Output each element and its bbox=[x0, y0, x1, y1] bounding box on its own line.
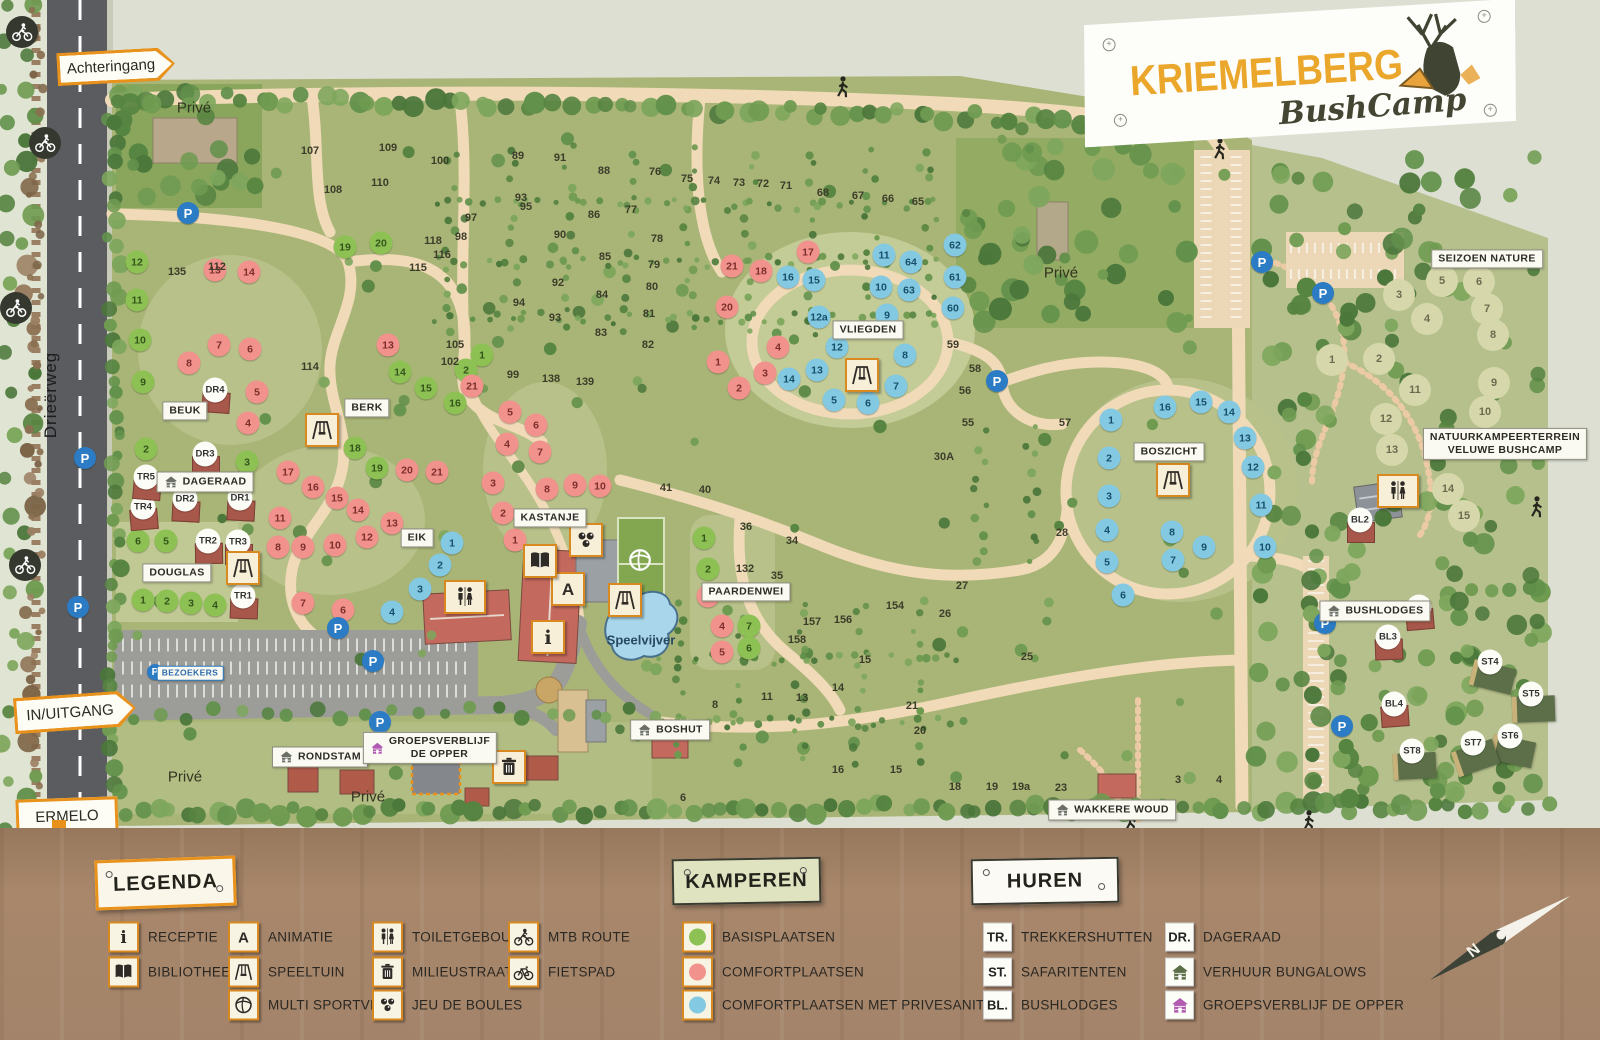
legend-label: FIETSPAD bbox=[548, 965, 615, 980]
pitch-marker-comfort_prive[interactable]: 8 bbox=[894, 344, 917, 367]
area-label: DOUGLAS bbox=[142, 563, 211, 582]
plot-number: 83 bbox=[595, 327, 607, 339]
swing-icon[interactable] bbox=[226, 551, 260, 585]
legend-label: COMFORTPLAATSEN MET PRIVESANITAIR bbox=[722, 998, 1007, 1013]
plot-number: 59 bbox=[947, 339, 959, 351]
walker-icon[interactable] bbox=[1207, 137, 1233, 163]
plot-number: 86 bbox=[588, 209, 600, 221]
legend-item-mtb: MTB ROUTE bbox=[508, 922, 630, 953]
rental-marker[interactable]: ST7 bbox=[1461, 731, 1486, 756]
swing-icon[interactable] bbox=[845, 358, 879, 392]
plot-number: 13 bbox=[796, 692, 808, 704]
pitch-marker-comfort_prive[interactable]: 62 bbox=[944, 234, 967, 257]
plot-number: 90 bbox=[554, 229, 566, 241]
pitch-marker-nature[interactable]: 15 bbox=[1448, 500, 1480, 532]
pitch-marker-comfort[interactable]: 2 bbox=[492, 502, 515, 525]
rental-marker[interactable]: ST8 bbox=[1400, 739, 1425, 764]
plot-number: 89 bbox=[512, 150, 524, 162]
prive-label: Privé bbox=[168, 769, 202, 786]
walker-icon[interactable] bbox=[1524, 495, 1550, 521]
pitch-marker-comfort_prive[interactable]: 3 bbox=[409, 578, 432, 601]
legend-item-animatie: AANIMATIE bbox=[228, 922, 333, 953]
plot-number: 132 bbox=[736, 563, 754, 575]
area-label: PAARDENWEI bbox=[702, 582, 791, 601]
plot-number: 66 bbox=[882, 193, 894, 205]
svg-text:A: A bbox=[238, 930, 249, 946]
pitch-marker-comfort[interactable]: 5 bbox=[246, 381, 269, 404]
pitch-marker-comfort_prive[interactable]: 14 bbox=[1218, 401, 1241, 424]
plot-number: 16 bbox=[832, 764, 844, 776]
pitch-marker-comfort_prive[interactable]: 16 bbox=[777, 266, 800, 289]
legend-item-huren: ST.SAFARITENTEN bbox=[983, 958, 1127, 987]
area-label: BEUK bbox=[162, 401, 207, 420]
rental-marker[interactable]: ST4 bbox=[1478, 650, 1503, 675]
house-icon bbox=[1165, 991, 1194, 1020]
pitch-marker-comfort_prive[interactable]: 15 bbox=[1190, 391, 1213, 414]
area-label: BOSHUT bbox=[630, 720, 710, 741]
parking-icon[interactable]: P bbox=[1331, 715, 1353, 737]
plot-number: 81 bbox=[643, 308, 655, 320]
rental-marker[interactable]: ST6 bbox=[1498, 724, 1523, 749]
legend-label: SAFARITENTEN bbox=[1021, 965, 1127, 980]
plot-number: 102 bbox=[441, 356, 459, 368]
legend-label: SPEELTUIN bbox=[268, 965, 345, 980]
pitch-marker-basis[interactable]: 2 bbox=[156, 590, 179, 613]
area-label: DAGERAAD bbox=[157, 472, 254, 493]
pitch-marker-basis[interactable]: 3 bbox=[180, 592, 203, 615]
area-label: SEIZOEN NATURE bbox=[1431, 249, 1543, 268]
parking-icon[interactable]: P bbox=[369, 711, 391, 733]
area-label: BUSHLODGES bbox=[1319, 601, 1430, 622]
plot-number: 41 bbox=[660, 482, 672, 494]
pitch-marker-comfort_prive[interactable]: 2 bbox=[429, 554, 452, 577]
pitch-marker-comfort[interactable]: 6 bbox=[525, 414, 548, 437]
wc-icon[interactable] bbox=[1377, 474, 1419, 508]
boules-icon[interactable] bbox=[569, 523, 603, 557]
info-icon[interactable]: i bbox=[531, 620, 565, 654]
pitch-marker-comfort_prive[interactable]: 11 bbox=[1250, 494, 1273, 517]
pitch-dot-icon bbox=[682, 990, 713, 1021]
mtb-icon[interactable] bbox=[9, 549, 41, 581]
pitch-marker-comfort[interactable]: 10 bbox=[324, 534, 347, 557]
pitch-marker-comfort_prive[interactable]: 11 bbox=[873, 244, 896, 267]
plot-number: 98 bbox=[455, 231, 467, 243]
plot-number: 4 bbox=[1216, 774, 1222, 786]
achteringang-sign: Achteringang bbox=[56, 47, 176, 86]
plot-number: 36 bbox=[740, 521, 752, 533]
pitch-marker-basis[interactable]: 19 bbox=[366, 457, 389, 480]
legend-label: BASISPLAATSEN bbox=[722, 930, 835, 945]
pitch-marker-comfort[interactable]: 8 bbox=[178, 352, 201, 375]
plot-number: 110 bbox=[371, 177, 389, 189]
legend-label: COMFORTPLAATSEN bbox=[722, 965, 864, 980]
ballwhite-icon[interactable] bbox=[627, 547, 653, 573]
plot-number: 56 bbox=[959, 385, 971, 397]
pitch-marker-comfort[interactable]: 13 bbox=[377, 334, 400, 357]
pitch-marker-basis[interactable]: 16 bbox=[444, 392, 467, 415]
svg-text:A: A bbox=[562, 580, 574, 599]
tag-icon: DR. bbox=[1165, 923, 1194, 952]
swing-icon[interactable] bbox=[608, 583, 642, 617]
plot-number: 15 bbox=[859, 654, 871, 666]
pitch-marker-comfort_prive[interactable]: 60 bbox=[942, 297, 965, 320]
legend-item-bike: FIETSPAD bbox=[508, 957, 615, 988]
rental-marker[interactable]: BL4 bbox=[1382, 692, 1407, 717]
rental-marker[interactable]: ST5 bbox=[1519, 682, 1544, 707]
legend-label: MILIEUSTRAAT bbox=[412, 965, 513, 980]
pitch-marker-comfort[interactable]: 21 bbox=[721, 255, 744, 278]
road-name-label: Drieërweg bbox=[41, 352, 61, 438]
pitch-marker-comfort_prive[interactable]: 6 bbox=[1112, 584, 1135, 607]
pitch-marker-comfort_prive[interactable]: 15 bbox=[803, 269, 826, 292]
plot-number: 14 bbox=[832, 682, 844, 694]
pitch-marker-nature[interactable]: 12 bbox=[1370, 403, 1402, 435]
pitch-marker-basis[interactable]: 6 bbox=[738, 637, 761, 660]
plot-number: 15 bbox=[890, 764, 902, 776]
plot-number: 35 bbox=[771, 570, 783, 582]
pitch-marker-comfort[interactable]: 5 bbox=[711, 641, 734, 664]
plot-number: 94 bbox=[513, 297, 525, 309]
plot-number: 6 bbox=[680, 792, 686, 804]
pitch-marker-nature[interactable]: 8 bbox=[1477, 319, 1509, 351]
pitch-marker-comfort_prive[interactable]: 61 bbox=[944, 266, 967, 289]
pitch-marker-comfort[interactable]: 3 bbox=[754, 362, 777, 385]
plot-number: 57 bbox=[1059, 417, 1071, 429]
legend-item-info: iRECEPTIE bbox=[108, 922, 218, 953]
legend-label: VERHUUR BUNGALOWS bbox=[1203, 965, 1366, 980]
pitch-marker-comfort_prive[interactable]: 3 bbox=[1098, 485, 1121, 508]
pitch-marker-basis[interactable]: 18 bbox=[344, 437, 367, 460]
plot-number: 158 bbox=[788, 634, 806, 646]
plot-number: 18 bbox=[949, 781, 961, 793]
pond-label: Speelvijver bbox=[607, 633, 676, 648]
pitch-marker-comfort_prive[interactable]: 7 bbox=[885, 375, 908, 398]
pitch-marker-basis[interactable]: 19 bbox=[334, 236, 357, 259]
book-icon[interactable] bbox=[523, 544, 557, 578]
pitch-marker-comfort_prive[interactable]: 10 bbox=[1254, 536, 1277, 559]
legend-label: RECEPTIE bbox=[148, 930, 218, 945]
plot-number: 112 bbox=[208, 261, 226, 273]
pitch-marker-comfort[interactable]: 11 bbox=[269, 507, 292, 530]
plot-number: 78 bbox=[651, 233, 663, 245]
pitch-marker-comfort[interactable]: 5 bbox=[499, 401, 522, 424]
sport-icon bbox=[228, 990, 259, 1021]
svg-text:i: i bbox=[544, 627, 551, 649]
plot-number: 80 bbox=[646, 281, 658, 293]
parking-icon[interactable]: P bbox=[74, 447, 96, 469]
pitch-marker-comfort_prive[interactable]: 10 bbox=[870, 276, 893, 299]
area-label: GROEPSVERBLIJF DE OPPER bbox=[363, 732, 497, 764]
plot-number: 8 bbox=[712, 699, 718, 711]
pitch-marker-basis[interactable]: 3 bbox=[236, 451, 259, 474]
pitch-marker-basis[interactable]: 2 bbox=[697, 558, 720, 581]
rental-marker[interactable]: BL3 bbox=[1376, 625, 1401, 650]
parking-icon[interactable]: P bbox=[1251, 251, 1273, 273]
pitch-marker-nature[interactable]: 3 bbox=[1383, 279, 1415, 311]
plot-number: 30A bbox=[934, 451, 954, 463]
pitch-marker-comfort_prive[interactable]: 5 bbox=[1096, 551, 1119, 574]
info-icon: i bbox=[108, 922, 139, 953]
plot-number: 25 bbox=[1021, 651, 1033, 663]
kamperen-sign: KAMPEREN bbox=[672, 857, 822, 906]
plot-number: 114 bbox=[301, 361, 319, 373]
pitch-marker-basis[interactable]: 10 bbox=[129, 329, 152, 352]
plot-number: 118 bbox=[424, 235, 442, 247]
pitch-marker-nature[interactable]: 13 bbox=[1376, 434, 1408, 466]
prive-label: Privé bbox=[351, 789, 385, 806]
pitch-marker-comfort[interactable]: 8 bbox=[267, 536, 290, 559]
tag-icon: TR. bbox=[983, 923, 1012, 952]
pitch-marker-comfort_prive[interactable]: 14 bbox=[778, 368, 801, 391]
legend-label: DAGERAAD bbox=[1203, 930, 1281, 945]
pitch-marker-basis[interactable]: 12 bbox=[126, 251, 149, 274]
plot-number: 73 bbox=[733, 177, 745, 189]
legend-item-wc: TOILETGEBOUW bbox=[372, 922, 524, 953]
prive-label: Privé bbox=[1044, 265, 1078, 282]
pitch-marker-comfort_prive[interactable]: 4 bbox=[381, 601, 404, 624]
plot-number: 79 bbox=[648, 259, 660, 271]
pitch-marker-comfort[interactable]: 20 bbox=[716, 296, 739, 319]
rental-marker[interactable]: DR3 bbox=[193, 442, 218, 467]
pitch-marker-comfort[interactable]: 9 bbox=[564, 474, 587, 497]
tag-icon: ST. bbox=[983, 958, 1012, 987]
rental-marker[interactable]: TR2 bbox=[196, 529, 221, 554]
pitch-marker-comfort[interactable]: 4 bbox=[496, 433, 519, 456]
area-label: VLIEGDEN bbox=[833, 320, 904, 339]
pitch-marker-comfort[interactable]: 12 bbox=[356, 526, 379, 549]
plot-number: 157 bbox=[803, 616, 821, 628]
pitch-marker-comfort[interactable]: 2 bbox=[728, 377, 751, 400]
pitch-marker-comfort[interactable]: 3 bbox=[482, 472, 505, 495]
plot-number: 68 bbox=[817, 187, 829, 199]
svg-text:i: i bbox=[120, 927, 126, 947]
pitch-marker-comfort_prive[interactable]: 13 bbox=[806, 359, 829, 382]
plot-number: 11 bbox=[761, 691, 773, 703]
legend-label: JEU DE BOULES bbox=[412, 998, 522, 1013]
wc-icon[interactable] bbox=[444, 580, 486, 614]
area-label: WAKKERE WOUD bbox=[1048, 800, 1176, 821]
pitch-marker-comfort_prive[interactable]: 13 bbox=[1234, 427, 1257, 450]
pitch-marker-comfort[interactable]: 7 bbox=[292, 592, 315, 615]
pitch-marker-comfort[interactable]: 14 bbox=[347, 499, 370, 522]
pitch-marker-basis[interactable]: 9 bbox=[132, 371, 155, 394]
pitch-dot-icon bbox=[682, 922, 713, 953]
trash-icon bbox=[372, 957, 403, 988]
pitch-marker-nature[interactable]: 1 bbox=[1316, 344, 1348, 376]
pitch-marker-basis[interactable]: 14 bbox=[389, 361, 412, 384]
pitch-marker-basis[interactable]: 15 bbox=[415, 377, 438, 400]
pitch-marker-basis[interactable]: 11 bbox=[126, 289, 149, 312]
plot-number: 116 bbox=[433, 249, 451, 261]
pitch-marker-comfort_prive[interactable]: 8 bbox=[1161, 521, 1184, 544]
legend-label: TREKKERSHUTTEN bbox=[1021, 930, 1153, 945]
plot-number: 109 bbox=[379, 142, 397, 154]
plot-number: 107 bbox=[301, 145, 319, 157]
plot-number: 67 bbox=[852, 190, 864, 202]
wc-icon bbox=[372, 922, 403, 953]
plot-number: 65 bbox=[912, 196, 924, 208]
pitch-marker-comfort_prive[interactable]: 12 bbox=[1242, 456, 1265, 479]
pitch-marker-comfort_prive[interactable]: 1 bbox=[1100, 409, 1123, 432]
area-label: BERK bbox=[344, 398, 389, 417]
parking-icon[interactable]: P bbox=[327, 617, 349, 639]
prive-label: Privé bbox=[177, 100, 211, 117]
bike-icon bbox=[508, 957, 539, 988]
legend-label: BUSHLODGES bbox=[1021, 998, 1118, 1013]
huren-sign: HUREN bbox=[971, 857, 1120, 906]
pitch-marker-comfort_prive[interactable]: 2 bbox=[1098, 447, 1121, 470]
pitch-marker-comfort_prive[interactable]: 9 bbox=[1193, 536, 1216, 559]
pitch-marker-comfort[interactable]: 18 bbox=[750, 260, 773, 283]
plot-number: 58 bbox=[969, 363, 981, 375]
plot-number: 92 bbox=[552, 277, 564, 289]
pitch-marker-comfort[interactable]: 4 bbox=[767, 336, 790, 359]
plot-number: 88 bbox=[598, 165, 610, 177]
plot-number: 93 bbox=[549, 312, 561, 324]
plot-number: 115 bbox=[409, 262, 427, 274]
compass: N bbox=[1420, 888, 1580, 988]
pitch-marker-comfort_prive[interactable]: 7 bbox=[1162, 549, 1185, 572]
rental-marker[interactable]: DR4 bbox=[203, 378, 228, 403]
legend-item-kamperen: COMFORTPLAATSEN MET PRIVESANITAIR bbox=[682, 990, 1007, 1021]
pitch-marker-comfort_prive[interactable]: 5 bbox=[823, 389, 846, 412]
pitch-marker-comfort_prive[interactable]: 6 bbox=[857, 392, 880, 415]
plot-number: 97 bbox=[465, 212, 477, 224]
pitch-marker-comfort[interactable]: 14 bbox=[238, 261, 261, 284]
pitch-marker-nature[interactable]: 11 bbox=[1399, 374, 1431, 406]
pitch-marker-nature[interactable]: 9 bbox=[1478, 367, 1510, 399]
pitch-marker-comfort[interactable]: 4 bbox=[711, 615, 734, 638]
plot-number: 77 bbox=[625, 204, 637, 216]
pitch-marker-comfort[interactable]: 4 bbox=[237, 412, 260, 435]
pitch-marker-basis[interactable]: 5 bbox=[155, 530, 178, 553]
pitch-marker-comfort[interactable]: 15 bbox=[326, 487, 349, 510]
parking-icon[interactable]: P bbox=[67, 596, 89, 618]
legend-item-swing: SPEELTUIN bbox=[228, 957, 345, 988]
pitch-marker-comfort_prive[interactable]: 64 bbox=[900, 251, 923, 274]
area-label: BOSZICHT bbox=[1134, 442, 1205, 461]
mtb-icon bbox=[508, 922, 539, 953]
plot-number: 139 bbox=[576, 376, 594, 388]
deer-logo-icon bbox=[1369, 6, 1493, 111]
pitch-marker-basis[interactable]: 1 bbox=[132, 589, 155, 612]
legend-item-extra: VERHUUR BUNGALOWS bbox=[1165, 958, 1366, 987]
walker-icon[interactable] bbox=[830, 75, 856, 101]
plot-number: 99 bbox=[507, 369, 519, 381]
rental-marker[interactable]: BL2 bbox=[1348, 508, 1373, 533]
pitch-marker-comfort[interactable]: 9 bbox=[292, 536, 315, 559]
pitch-marker-basis[interactable]: 1 bbox=[693, 527, 716, 550]
pitch-marker-comfort[interactable]: 6 bbox=[239, 338, 262, 361]
pitch-marker-comfort[interactable]: 20 bbox=[396, 459, 419, 482]
house-icon bbox=[1165, 958, 1194, 987]
parking-icon[interactable]: P bbox=[177, 202, 199, 224]
plot-number: 100 bbox=[431, 155, 449, 167]
parking-icon[interactable]: P bbox=[986, 370, 1008, 392]
pitch-marker-nature[interactable]: 4 bbox=[1411, 303, 1443, 335]
plot-number: 84 bbox=[596, 289, 608, 301]
legend-label: BIBLIOTHEEK bbox=[148, 965, 240, 980]
pitch-marker-comfort_prive[interactable]: 16 bbox=[1154, 396, 1177, 419]
legend-item-huren: BL.BUSHLODGES bbox=[983, 991, 1118, 1020]
parking-icon[interactable]: P bbox=[362, 650, 384, 672]
legend-label: MTB ROUTE bbox=[548, 930, 630, 945]
pitch-marker-comfort_prive[interactable]: 12a bbox=[808, 306, 831, 329]
area-label: BEZOEKERS bbox=[157, 666, 224, 681]
pitch-marker-comfort[interactable]: 17 bbox=[797, 241, 820, 264]
legend-item-trash: MILIEUSTRAAT bbox=[372, 957, 513, 988]
plot-number: 72 bbox=[757, 178, 769, 190]
pitch-marker-nature[interactable]: 10 bbox=[1469, 396, 1501, 428]
pitch-marker-comfort[interactable]: 8 bbox=[536, 478, 559, 501]
pitch-marker-basis[interactable]: 2 bbox=[135, 438, 158, 461]
area-label: NATUURKAMPEERTERREIN VELUWE BUSHCAMP bbox=[1423, 428, 1587, 460]
pitch-marker-comfort[interactable]: 10 bbox=[589, 475, 612, 498]
pitch-marker-nature[interactable]: 5 bbox=[1426, 265, 1458, 297]
rental-marker[interactable]: TR5 bbox=[134, 465, 159, 490]
pitch-marker-comfort[interactable]: 7 bbox=[208, 334, 231, 357]
plot-number: 85 bbox=[599, 251, 611, 263]
pitch-marker-comfort_prive[interactable]: 1 bbox=[441, 532, 464, 555]
pitch-marker-comfort[interactable]: 16 bbox=[302, 476, 325, 499]
area-label: EIK bbox=[401, 528, 434, 547]
mtb-icon[interactable] bbox=[29, 127, 61, 159]
swing-icon[interactable] bbox=[305, 413, 339, 447]
pitch-marker-comfort[interactable]: 1 bbox=[707, 351, 730, 374]
plot-number: 74 bbox=[708, 175, 720, 187]
swing-icon bbox=[228, 957, 259, 988]
plot-number: 21 bbox=[906, 700, 918, 712]
pitch-marker-basis[interactable]: 4 bbox=[204, 594, 227, 617]
plot-number: 91 bbox=[554, 152, 566, 164]
swing-icon[interactable] bbox=[1156, 463, 1190, 497]
pitch-marker-comfort[interactable]: 21 bbox=[426, 461, 449, 484]
pitch-marker-comfort[interactable]: 17 bbox=[277, 461, 300, 484]
mtb-icon[interactable] bbox=[0, 292, 32, 324]
plot-number: 156 bbox=[834, 614, 852, 626]
parking-icon[interactable]: P bbox=[1312, 282, 1334, 304]
plot-number: 82 bbox=[642, 339, 654, 351]
pitch-marker-nature[interactable]: 2 bbox=[1363, 343, 1395, 375]
plot-number: 3 bbox=[1175, 774, 1181, 786]
boules-icon bbox=[372, 990, 403, 1021]
legend-item-extra: GROEPSVERBLIJF DE OPPER bbox=[1165, 991, 1404, 1020]
campground-map: 1211109236512341415161920181912127613147… bbox=[0, 0, 1600, 1040]
pitch-marker-basis[interactable]: 20 bbox=[370, 232, 393, 255]
book-icon bbox=[108, 957, 139, 988]
plot-number: 76 bbox=[649, 166, 661, 178]
plot-number: 27 bbox=[956, 580, 968, 592]
pitch-marker-comfort_prive[interactable]: 63 bbox=[898, 279, 921, 302]
legend-item-boules: JEU DE BOULES bbox=[372, 990, 522, 1021]
plot-number: 105 bbox=[446, 339, 464, 351]
plot-number: 34 bbox=[786, 535, 798, 547]
rental-marker[interactable]: TR1 bbox=[231, 584, 256, 609]
pitch-marker-basis[interactable]: 6 bbox=[127, 530, 150, 553]
pitch-marker-basis[interactable]: 7 bbox=[738, 615, 761, 638]
plot-number: 95 bbox=[520, 201, 532, 213]
mtb-icon[interactable] bbox=[6, 16, 38, 48]
pitch-marker-comfort_prive[interactable]: 4 bbox=[1096, 519, 1119, 542]
pitch-marker-comfort[interactable]: 21 bbox=[461, 375, 484, 398]
plot-number: 20 bbox=[914, 725, 926, 737]
legend-label: ANIMATIE bbox=[268, 930, 333, 945]
plot-number: 55 bbox=[962, 417, 974, 429]
plot-number: 154 bbox=[886, 600, 904, 612]
pitch-marker-comfort[interactable]: 7 bbox=[529, 441, 552, 464]
legend-item-huren: TR.TREKKERSHUTTEN bbox=[983, 923, 1153, 952]
plot-number: 19 bbox=[986, 781, 998, 793]
